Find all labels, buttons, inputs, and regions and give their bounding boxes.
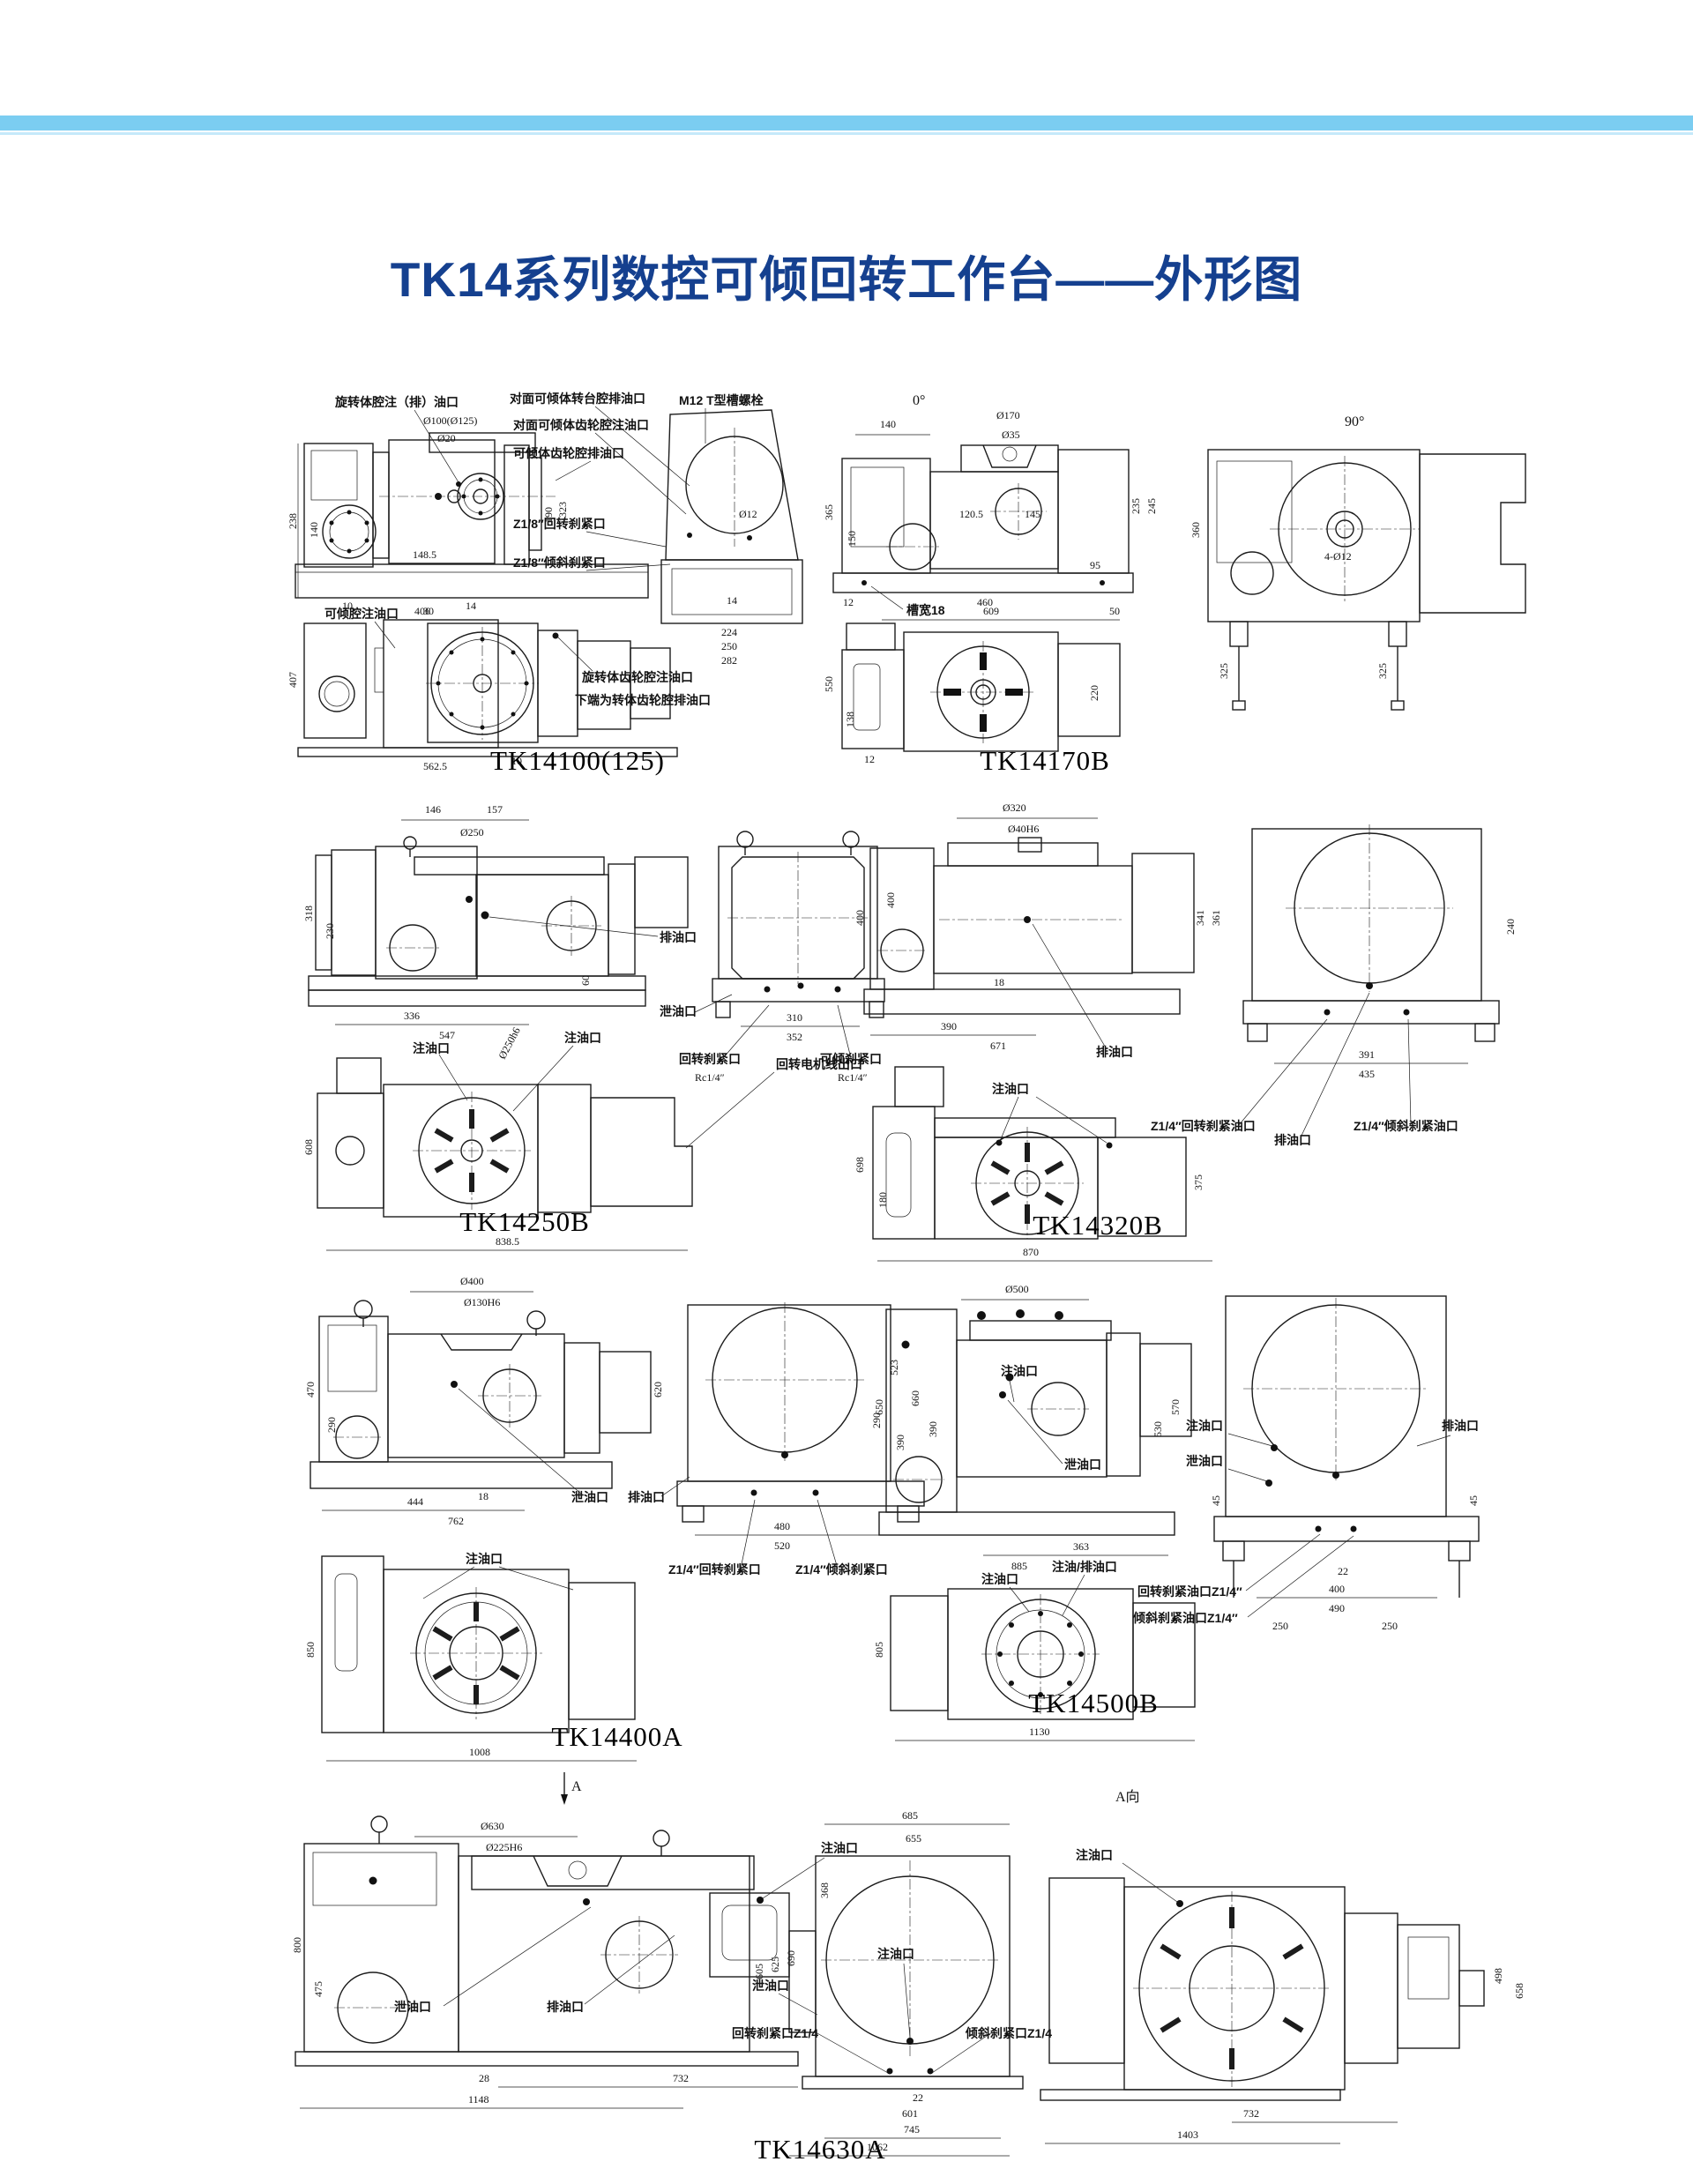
top-accent-line bbox=[0, 132, 1693, 135]
dim-label: Ø35 bbox=[1002, 429, 1020, 441]
dim-label: 146 bbox=[425, 803, 441, 816]
dim-label: 1008 bbox=[469, 1746, 490, 1758]
callout-label: 泄油口 bbox=[394, 2000, 431, 2014]
tk14400-side-view: Ø400 Ø130H6 泄油口 470 290 444 18 762 620 bbox=[304, 1275, 664, 1527]
top-accent-band bbox=[0, 116, 1693, 130]
dim-label: 363 bbox=[1073, 1540, 1089, 1553]
drawing-tk14100: 旋转体腔注（排）油口 Ø100(Ø125) Ø20 对面可倾体转台腔排油口 对面… bbox=[291, 384, 820, 776]
tk14250-side-view: 146 157 Ø250 排油口 318 230 60 336 547 bbox=[302, 803, 697, 1041]
dim-label: 325 bbox=[1218, 663, 1230, 679]
callout-label: 排油口 bbox=[1274, 1133, 1311, 1147]
callout-label: 排油口 bbox=[628, 1490, 665, 1504]
dim-label: 435 bbox=[1359, 1068, 1375, 1080]
tk14500-side-view: Ø500 注油口 泄油口 650 390 363 885 530 570 bbox=[873, 1283, 1191, 1572]
dim-label: 368 bbox=[818, 1882, 831, 1898]
callout-label: 回转刹紧口 bbox=[679, 1052, 741, 1066]
dim-label: 325 bbox=[1376, 663, 1389, 679]
dim-label: Ø130H6 bbox=[464, 1296, 500, 1308]
dim-label: 1403 bbox=[1177, 2128, 1198, 2141]
model-label-tk14100: TK14100(125) bbox=[490, 745, 665, 777]
model-label-tk14250: TK14250B bbox=[459, 1206, 590, 1238]
dim-label: 224 bbox=[721, 626, 737, 638]
tk14630-front-view: 685 655 368 注油口 泄油口 回转刹紧口Z1/4 倾斜刹紧口Z1/4 … bbox=[732, 1809, 1052, 2156]
callout-label: 对面可倾体转台腔排油口 bbox=[510, 391, 645, 406]
dim-label: 605 bbox=[753, 1964, 765, 1979]
callout-label: 可倾体齿轮腔排油口 bbox=[513, 446, 624, 460]
callout-label: 泄油口 bbox=[571, 1490, 608, 1504]
callout-label: 排油口 bbox=[1442, 1419, 1479, 1433]
dim-label: 4-Ø12 bbox=[1324, 550, 1352, 563]
dim-label: 850 bbox=[304, 1642, 317, 1658]
dim-label: Ø170 bbox=[996, 409, 1020, 421]
dim-label: 235 bbox=[1130, 498, 1142, 514]
model-label-tk14320: TK14320B bbox=[1033, 1210, 1163, 1241]
dim-label: 745 bbox=[904, 2123, 920, 2136]
dim-label: 470 bbox=[304, 1382, 317, 1398]
callout-label: Z1/8″倾斜刹紧口 bbox=[513, 555, 606, 570]
dim-label: 570 bbox=[1169, 1399, 1182, 1415]
dim-label: Ø500 bbox=[1005, 1283, 1029, 1295]
callout-label: 注油口 bbox=[564, 1031, 601, 1045]
callout-label: 注油口 bbox=[877, 1947, 914, 1961]
dim-label: 14 bbox=[466, 600, 476, 612]
dim-label: 1148 bbox=[468, 2093, 489, 2106]
dim-label: 609 bbox=[983, 605, 999, 617]
dim-label: 490 bbox=[1329, 1602, 1345, 1614]
callout-label: 对面可倾体齿轮腔注油口 bbox=[513, 418, 649, 432]
dim-label: Ø12 bbox=[739, 508, 757, 520]
dim-label: 60 bbox=[579, 975, 592, 986]
callout-label: Z1/4″回转刹紧油口 bbox=[1151, 1119, 1256, 1133]
dim-label: 30 bbox=[423, 605, 434, 617]
callout-label: 泄油口 bbox=[1064, 1457, 1101, 1472]
tk14170-plan-view: 609 50 550 138 12 220 bbox=[823, 605, 1120, 765]
dim-label: 341 bbox=[1194, 910, 1206, 926]
dim-label: 250 bbox=[1382, 1620, 1398, 1632]
dim-label: 148.5 bbox=[413, 548, 436, 561]
callout-label: 可倾腔注油口 bbox=[324, 607, 399, 621]
callout-label: 下端为转体齿轮腔排油口 bbox=[575, 693, 711, 707]
callout-label: 泄油口 bbox=[1186, 1454, 1223, 1468]
callout-label: Z1/8″回转刹紧口 bbox=[513, 517, 606, 531]
dim-label: 45 bbox=[1467, 1495, 1480, 1506]
callout-label: 注油口 bbox=[413, 1041, 450, 1055]
callout-label: M12 T型槽螺栓 bbox=[679, 393, 764, 407]
dim-label: 50 bbox=[1109, 605, 1120, 617]
callout-label: Z1/4″倾斜刹紧油口 bbox=[1354, 1119, 1458, 1133]
dim-label: Ø400 bbox=[460, 1275, 484, 1287]
dim-label: 290 bbox=[325, 1417, 338, 1433]
dim-label: 601 bbox=[902, 2107, 918, 2120]
dim-label: 375 bbox=[1192, 1174, 1204, 1190]
dim-label: 145 bbox=[1025, 508, 1040, 520]
dim-label: 732 bbox=[1243, 2107, 1259, 2120]
dim-label: 391 bbox=[1359, 1048, 1375, 1061]
dim-label: 310 bbox=[787, 1011, 802, 1024]
dim-label: Ø20 bbox=[437, 432, 456, 444]
tk14100-callouts-top: 旋转体腔注（排）油口 Ø100(Ø125) Ø20 对面可倾体转台腔排油口 对面… bbox=[334, 391, 764, 570]
dim-label: 698 bbox=[854, 1157, 866, 1173]
dim-label: Ø320 bbox=[1003, 801, 1026, 814]
dim-label: Ø250h6 bbox=[496, 1025, 523, 1062]
dim-label: 180 bbox=[876, 1192, 889, 1208]
dim-label: 250 bbox=[1272, 1620, 1288, 1632]
dim-label: 95 bbox=[1090, 559, 1100, 571]
tk14500-front-view: 注油口 泄油口 排油口 回转刹紧油口Z1/4″ 倾斜刹紧油口Z1/4″ 45 4… bbox=[1132, 1296, 1480, 1632]
catalog-page: TK14系列数控可倾回转工作台——外形图 bbox=[0, 0, 1693, 2184]
callout-label: Z1/4″倾斜刹紧口 bbox=[795, 1562, 888, 1577]
dim-label: 365 bbox=[823, 504, 835, 520]
callout-label: 泄油口 bbox=[752, 1979, 789, 1993]
dim-label: 230 bbox=[324, 923, 336, 939]
dim-label: 140 bbox=[308, 522, 320, 538]
dim-label: 530 bbox=[1152, 1421, 1164, 1437]
callout-label: 倾斜刹紧油口Z1/4″ bbox=[1132, 1611, 1238, 1625]
callout-label: 倾斜刹紧口Z1/4 bbox=[965, 2026, 1052, 2040]
dim-label: 620 bbox=[652, 1382, 664, 1398]
model-label-tk14170: TK14170B bbox=[980, 745, 1110, 777]
drawing-tk14400: Ø400 Ø130H6 泄油口 470 290 444 18 762 620 bbox=[309, 1265, 943, 1768]
dim-label: 690 bbox=[785, 1950, 797, 1966]
dim-label: 671 bbox=[990, 1040, 1006, 1052]
dim-label: 480 bbox=[774, 1520, 790, 1532]
dim-label: 400 bbox=[854, 910, 866, 926]
dim-label: 22 bbox=[1338, 1565, 1348, 1577]
dim-label: 18 bbox=[478, 1490, 489, 1502]
tk14170-90-view: 90° 4-Ø12 360 325 325 bbox=[1190, 414, 1525, 710]
dim-label: 138 bbox=[844, 712, 856, 727]
dim-label: 323 bbox=[556, 502, 569, 518]
callout-label: 回转电机线出口 bbox=[776, 1057, 862, 1071]
callout-label: 注油口 bbox=[821, 1841, 858, 1855]
page-title: TK14系列数控可倾回转工作台——外形图 bbox=[0, 240, 1693, 310]
dim-label: 352 bbox=[787, 1031, 802, 1043]
dim-label: 120.5 bbox=[959, 508, 983, 520]
dim-label: Ø225H6 bbox=[486, 1841, 522, 1853]
dim-label: 550 bbox=[823, 676, 835, 692]
dim-label: 28 bbox=[479, 2072, 489, 2084]
tk14630-side-view: Ø630 Ø225H6 泄油口 排油口 注油口 800 475 bbox=[291, 1816, 858, 2108]
callout-label: 槽宽18 bbox=[906, 603, 945, 617]
dim-label: 22 bbox=[913, 2091, 923, 2104]
dim-label: 361 bbox=[1210, 910, 1222, 926]
drawing-tk14250: 146 157 Ø250 排油口 318 230 60 336 547 bbox=[309, 794, 917, 1256]
dim-label: 240 bbox=[1504, 919, 1517, 935]
dim-label: 562.5 bbox=[423, 760, 447, 772]
dim-label: 12 bbox=[864, 753, 875, 765]
drawing-tk14630: A Ø630 Ø225H6 泄油口 排油口 注油口 bbox=[295, 1768, 1565, 2178]
dim-label: 547 bbox=[439, 1029, 455, 1041]
view-label: 90° bbox=[1345, 414, 1364, 429]
dim-label: 475 bbox=[312, 1981, 324, 1997]
dim-label: 732 bbox=[673, 2072, 689, 2084]
callout-label: 排油口 bbox=[660, 930, 697, 944]
dim-label: 318 bbox=[302, 906, 315, 921]
model-label-tk14400: TK14400A bbox=[551, 1721, 682, 1753]
dim-label: Ø100(Ø125) bbox=[423, 414, 477, 427]
dim-label: 18 bbox=[994, 976, 1004, 988]
callout-label: 回转刹紧口Z1/4 bbox=[732, 2026, 818, 2040]
dim-label: 336 bbox=[404, 1010, 420, 1022]
callout-label: 注油口 bbox=[992, 1082, 1029, 1096]
dim-label: 250 bbox=[721, 640, 737, 652]
dim-label: 650 bbox=[873, 1399, 885, 1415]
dim-label: 360 bbox=[1190, 522, 1202, 538]
dim-label: 498 bbox=[1492, 1968, 1504, 1984]
callout-label: 注油口 bbox=[1186, 1419, 1223, 1433]
dim-label: 444 bbox=[407, 1495, 423, 1508]
callout-label: 注油口 bbox=[466, 1552, 503, 1566]
callout-label: 旋转体腔注（排）油口 bbox=[334, 395, 459, 409]
view-label: A bbox=[571, 1779, 582, 1794]
dim-label: 150 bbox=[846, 531, 858, 547]
dim-label: 685 bbox=[902, 1809, 918, 1822]
dim-label: 658 bbox=[1513, 1983, 1525, 1999]
callout-label: 旋转体齿轮腔注油口 bbox=[581, 670, 693, 684]
tk14630-a-view: A向 注油口 498 658 732 1403 bbox=[1040, 1789, 1525, 2143]
tk14320-side-view: Ø320 Ø40H6 排油口 400 341 361 18 390 671 bbox=[854, 801, 1222, 1059]
dim-label: 608 bbox=[302, 1139, 315, 1155]
tk14320-front-view: 240 391 435 Z1/4″回转刹紧油口 排油口 Z1/4″倾斜刹紧油口 bbox=[1151, 824, 1517, 1147]
dim-label: 390 bbox=[894, 1435, 906, 1450]
dim-label: Ø630 bbox=[481, 1820, 504, 1832]
dim-label: 762 bbox=[448, 1515, 464, 1527]
dim-label: 14 bbox=[727, 594, 737, 607]
dim-label: 870 bbox=[1023, 1246, 1039, 1258]
dim-label: 245 bbox=[1145, 498, 1158, 514]
dim-label: 390 bbox=[941, 1020, 957, 1032]
dim-label: 190 bbox=[542, 507, 555, 523]
dim-label: 220 bbox=[1088, 685, 1100, 701]
tk14100-section-view bbox=[661, 410, 802, 623]
dim-label: Ø40H6 bbox=[1008, 823, 1039, 835]
dim-label: 520 bbox=[774, 1539, 790, 1552]
drawing-tk14170: 0° 140 Ø170 Ø35 365 150 120.5 145 235 24… bbox=[829, 384, 1534, 776]
dim-label: 157 bbox=[487, 803, 503, 816]
view-label: A向 bbox=[1115, 1789, 1140, 1805]
callout-label: 注油口 bbox=[1001, 1364, 1038, 1378]
model-label-tk14500: TK14500B bbox=[1028, 1688, 1159, 1719]
callout-label: 注油口 bbox=[981, 1572, 1018, 1586]
dim-label: 885 bbox=[1011, 1560, 1027, 1572]
model-label-tk14630: TK14630A bbox=[754, 2134, 885, 2165]
dim-label: 282 bbox=[721, 654, 737, 667]
dim-label: 625 bbox=[769, 1957, 781, 1972]
dim-label: 140 bbox=[880, 418, 896, 430]
callout-label: Z1/4″回转刹紧口 bbox=[668, 1562, 761, 1577]
dim-label: Ø250 bbox=[460, 826, 484, 839]
dim-label: 12 bbox=[843, 596, 854, 608]
dim-label: 655 bbox=[906, 1832, 921, 1845]
dim-label: 407 bbox=[287, 672, 299, 688]
dim-label: 238 bbox=[287, 513, 299, 529]
callout-label: 注油口 bbox=[1076, 1848, 1113, 1862]
callout-label: 泄油口 bbox=[660, 1004, 697, 1018]
dim-label: 400 bbox=[1329, 1583, 1345, 1595]
drawing-tk14320: Ø320 Ø40H6 排油口 400 341 361 18 390 671 bbox=[860, 794, 1539, 1265]
dim-label: Rc1/4″ bbox=[695, 1071, 725, 1084]
dim-label: 805 bbox=[873, 1642, 885, 1658]
tk14170-front-view: 0° 140 Ø170 Ø35 365 150 120.5 145 235 24… bbox=[823, 393, 1158, 617]
dim-label: 800 bbox=[291, 1937, 303, 1953]
dim-label: 1130 bbox=[1029, 1726, 1050, 1738]
callout-label: 排油口 bbox=[547, 2000, 584, 2014]
callout-label: 排油口 bbox=[1096, 1045, 1133, 1059]
view-label: 0° bbox=[913, 393, 925, 408]
callout-label: 回转刹紧油口Z1/4″ bbox=[1137, 1584, 1242, 1599]
callout-label: 注油/排油口 bbox=[1052, 1560, 1117, 1574]
tk14630-marker-a: A bbox=[561, 1772, 582, 1805]
dim-label: 45 bbox=[1210, 1495, 1222, 1506]
drawing-tk14500: Ø500 注油口 泄油口 650 390 363 885 530 570 bbox=[877, 1270, 1534, 1746]
